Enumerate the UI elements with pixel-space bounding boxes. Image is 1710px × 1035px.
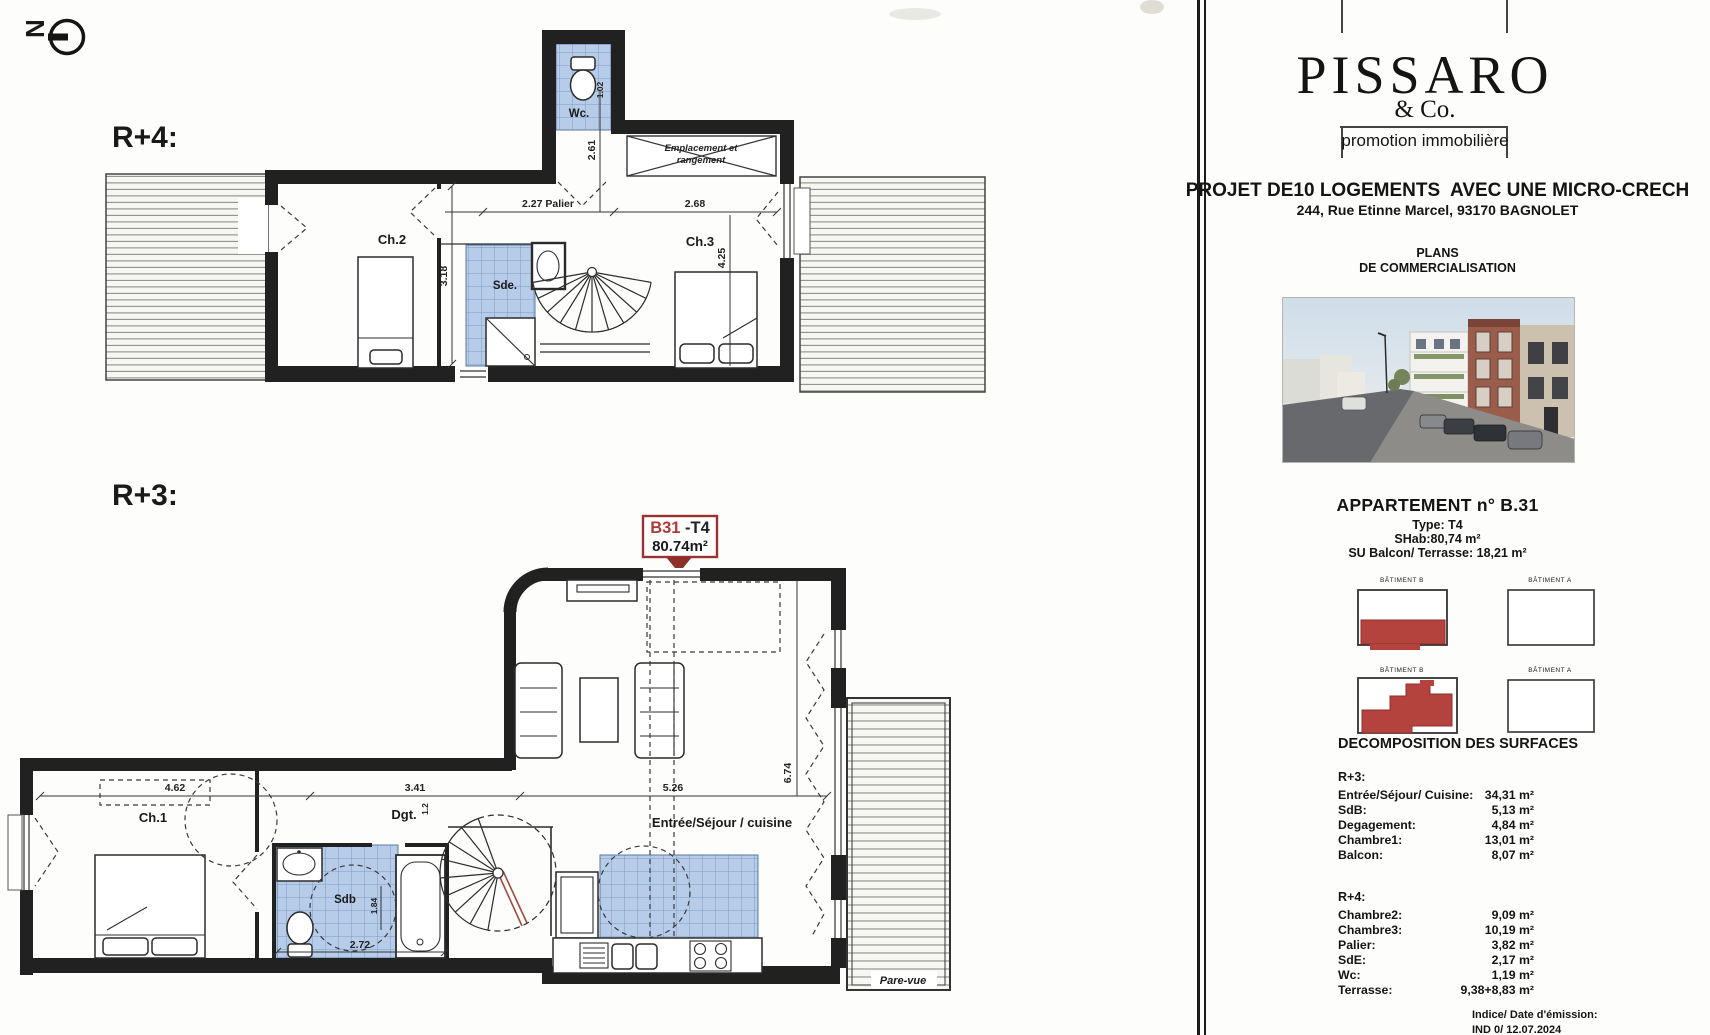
surface-label: SdE: bbox=[1338, 953, 1366, 968]
svg-text:2.27 Palier: 2.27 Palier bbox=[522, 198, 574, 210]
apartment-title: APPARTEMENT n° B.31 bbox=[1210, 495, 1665, 516]
surface-value: 4,84 m² bbox=[1492, 818, 1534, 833]
keyplan-label: BÂTIMENT A bbox=[1528, 665, 1572, 674]
window-sill bbox=[794, 188, 810, 254]
bathtub-icon bbox=[396, 855, 445, 958]
surface-row: Palier:3,82 m² bbox=[1338, 938, 1534, 953]
keyplan-label: BÂTIMENT A bbox=[1528, 575, 1572, 584]
surface-value: 34,31 m² bbox=[1485, 788, 1534, 803]
washbasin-icon bbox=[277, 848, 322, 881]
terrace-right bbox=[800, 177, 985, 392]
svg-text:1.02: 1.02 bbox=[595, 81, 605, 98]
panel-divider bbox=[1204, 0, 1206, 1035]
svg-text:3.18: 3.18 bbox=[438, 266, 450, 287]
surface-row: Chambre2:9,09 m² bbox=[1338, 908, 1534, 923]
surface-value: 1,19 m² bbox=[1492, 968, 1534, 983]
apartment-shab: SHab:80,74 m² bbox=[1210, 532, 1665, 546]
toilet-icon bbox=[287, 912, 313, 957]
balcony: Pare-vue bbox=[847, 698, 950, 990]
project-photo bbox=[1282, 297, 1575, 463]
floor-label-r4: R+4: bbox=[112, 121, 178, 154]
terrace-door-notch bbox=[238, 198, 268, 254]
keyplan-bat-a-r3 bbox=[1508, 680, 1594, 732]
door-swing bbox=[756, 192, 778, 246]
entry-opening bbox=[643, 568, 700, 581]
svg-text:1.2: 1.2 bbox=[420, 803, 430, 815]
surface-value: 9,09 m² bbox=[1492, 908, 1534, 923]
svg-text:2.61: 2.61 bbox=[586, 140, 598, 161]
unit-area: 80.74m² bbox=[652, 538, 708, 555]
bed-ch3 bbox=[675, 272, 757, 368]
svg-text:2.72: 2.72 bbox=[350, 939, 371, 951]
svg-text:6.74: 6.74 bbox=[782, 763, 794, 784]
svg-text:5.26: 5.26 bbox=[663, 782, 684, 794]
plan-r3: Pare-vue bbox=[8, 568, 950, 990]
surface-label: Balcon: bbox=[1338, 848, 1383, 863]
sofa-left bbox=[515, 663, 562, 758]
folding-door bbox=[806, 634, 824, 936]
kitchen-tiles bbox=[600, 855, 758, 938]
keyplan-group: BÂTIMENT B BÂTIMENT A BÂTIMENT B BÂTIMEN… bbox=[1350, 570, 1610, 740]
keyplan-label: BÂTIMENT B bbox=[1380, 665, 1424, 674]
surface-row: SdB:5,13 m² bbox=[1338, 803, 1534, 818]
apartment-type: Type: T4 bbox=[1210, 518, 1665, 532]
apartment-su: SU Balcon/ Terrasse: 18,21 m² bbox=[1210, 546, 1665, 560]
logo-tagline: promotion immobilière bbox=[1210, 131, 1640, 151]
svg-text:B31 -T4: B31 -T4 bbox=[650, 519, 710, 537]
toilet-icon bbox=[571, 57, 596, 100]
unit-type: -T4 bbox=[680, 519, 710, 537]
panel-divider bbox=[1197, 0, 1200, 1035]
door-swing bbox=[410, 188, 435, 236]
svg-text:4.25: 4.25 bbox=[716, 248, 728, 269]
room-label-ch3: Ch.3 bbox=[686, 234, 714, 249]
surfaces-r3-label: R+3: bbox=[1338, 770, 1365, 784]
surface-row: Balcon:8,07 m² bbox=[1338, 848, 1534, 863]
svg-text:2.68: 2.68 bbox=[685, 198, 706, 210]
surface-label: Degagement: bbox=[1338, 818, 1416, 833]
unit-marker: B31 -T4 80.74m² bbox=[643, 516, 717, 573]
sofa-right bbox=[635, 663, 684, 758]
emission-label: Indice/ Date d'émission: bbox=[1472, 1008, 1597, 1023]
surface-row: Wc:1,19 m² bbox=[1338, 968, 1534, 983]
surface-row: Chambre1:13,01 m² bbox=[1338, 833, 1534, 848]
door-swing bbox=[233, 855, 257, 909]
surface-label: Terrasse: bbox=[1338, 983, 1392, 998]
surface-row: Chambre3:10,19 m² bbox=[1338, 923, 1534, 938]
surface-label: Chambre3: bbox=[1338, 923, 1402, 938]
surface-label: Chambre1: bbox=[1338, 833, 1402, 848]
room-label-ch1: Ch.1 bbox=[139, 810, 167, 825]
pare-vue-label: Pare-vue bbox=[880, 975, 926, 987]
turning-circle bbox=[185, 774, 277, 866]
scan-smudge bbox=[889, 8, 941, 20]
keyplan-r3 bbox=[1358, 678, 1457, 733]
plans-heading-2: DE COMMERCIALISATION bbox=[1210, 261, 1665, 276]
void-outline bbox=[647, 582, 780, 652]
surface-row: Degagement:4,84 m² bbox=[1338, 818, 1534, 833]
surfaces-r3-table: Entrée/Séjour/ Cuisine:34,31 m²SdB:5,13 … bbox=[1338, 788, 1534, 863]
surface-value: 8,07 m² bbox=[1492, 848, 1534, 863]
keyplan-bat-a-r4 bbox=[1508, 590, 1594, 645]
surfaces-r4-table: Chambre2:9,09 m²Chambre3:10,19 m²Palier:… bbox=[1338, 908, 1534, 999]
storage-box: Emplacement et rangement bbox=[627, 136, 776, 176]
logo-frame bbox=[1341, 0, 1343, 33]
surface-value: 10,19 m² bbox=[1485, 923, 1534, 938]
surface-value: 13,01 m² bbox=[1485, 833, 1534, 848]
surface-row: Terrasse:9,38+8,83 m² bbox=[1338, 983, 1534, 998]
surface-label: Palier: bbox=[1338, 938, 1376, 953]
coffee-table bbox=[580, 678, 618, 742]
window-sill bbox=[8, 815, 22, 890]
plans-heading-1: PLANS bbox=[1210, 246, 1665, 261]
surface-value: 2,17 m² bbox=[1492, 953, 1534, 968]
surface-value: 9,38+8,83 m² bbox=[1461, 983, 1535, 998]
surface-row: Entrée/Séjour/ Cuisine:34,31 m² bbox=[1338, 788, 1534, 803]
room-label-sde: Sde. bbox=[493, 280, 517, 292]
scan-smudge bbox=[1140, 0, 1164, 14]
tv-console bbox=[567, 580, 637, 601]
north-arrow-icon: N bbox=[20, 19, 84, 53]
room-label-ch2: Ch.2 bbox=[378, 232, 406, 247]
bed-ch2 bbox=[358, 257, 413, 368]
room-label-sejour: Entrée/Séjour / cuisine bbox=[652, 815, 792, 830]
plan-r4: Emplacement et rangement bbox=[106, 30, 985, 392]
door-swing bbox=[281, 206, 307, 250]
project-title: PROJET DE10 LOGEMENTS AVEC UNE MICRO-CRE… bbox=[1165, 180, 1710, 202]
svg-text:1.84: 1.84 bbox=[369, 897, 379, 914]
surface-row: SdE:2,17 m² bbox=[1338, 953, 1534, 968]
surfaces-title: DECOMPOSITION DES SURFACES bbox=[1338, 736, 1638, 752]
spiral-stair-r3 bbox=[440, 815, 556, 936]
project-address: 244, Rue Etinne Marcel, 93170 BAGNOLET bbox=[1165, 202, 1710, 218]
logo-frame bbox=[1506, 0, 1508, 33]
north-letter: N bbox=[20, 19, 50, 38]
door-swing bbox=[35, 818, 58, 886]
surface-label: SdB: bbox=[1338, 803, 1367, 818]
surface-label: Wc: bbox=[1338, 968, 1361, 983]
emission-value: IND 0/ 12.07.2024 bbox=[1472, 1023, 1561, 1035]
logo-subname: & Co. bbox=[1210, 96, 1640, 124]
svg-text:3.41: 3.41 bbox=[405, 782, 426, 794]
keyplan-r4 bbox=[1358, 590, 1447, 650]
storage-label-1: Emplacement et bbox=[665, 143, 739, 154]
room-label-wc: Wc. bbox=[569, 108, 589, 120]
keyplan-label: BÂTIMENT B bbox=[1380, 575, 1424, 584]
svg-text:4.62: 4.62 bbox=[165, 782, 186, 794]
floor-plan-canvas: N R+4: R+3: bbox=[0, 0, 1200, 1035]
surface-label: Entrée/Séjour/ Cuisine: bbox=[1338, 788, 1473, 803]
storage-label-2: rangement bbox=[677, 155, 726, 166]
shower-icon bbox=[486, 318, 535, 366]
surfaces-r4-label: R+4: bbox=[1338, 890, 1365, 904]
scanned-plan-page: N R+4: R+3: bbox=[0, 0, 1710, 1035]
unit-number: B31 bbox=[650, 519, 680, 537]
room-label-dgt: Dgt. bbox=[391, 807, 416, 822]
room-label-sdb: Sdb bbox=[334, 894, 356, 906]
logo-frame bbox=[1340, 126, 1508, 128]
surface-label: Chambre2: bbox=[1338, 908, 1402, 923]
floor-label-r3: R+3: bbox=[112, 479, 178, 512]
surface-value: 3,82 m² bbox=[1492, 938, 1534, 953]
surface-value: 5,13 m² bbox=[1492, 803, 1534, 818]
bed-ch1 bbox=[95, 855, 205, 958]
